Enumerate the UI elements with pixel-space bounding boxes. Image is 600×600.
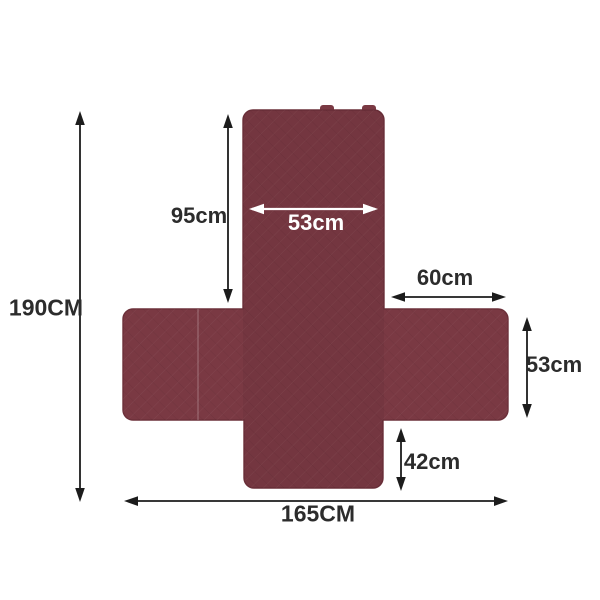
- arm-length-label: 60cm: [417, 267, 473, 289]
- back-height-label: 95cm: [171, 205, 227, 227]
- dimension-diagram: 190CM 95cm 53cm 60cm 53cm 42cm 165CM: [0, 0, 600, 600]
- total-height-label: 190CM: [9, 297, 83, 320]
- arm-length-arrow: [391, 292, 506, 302]
- back-width-label: 53cm: [288, 212, 344, 234]
- fabric-shading: [198, 110, 384, 488]
- front-skirt-height-label: 42cm: [404, 451, 460, 473]
- total-width-label: 165CM: [281, 503, 355, 526]
- arm-depth-label: 53cm: [526, 354, 582, 376]
